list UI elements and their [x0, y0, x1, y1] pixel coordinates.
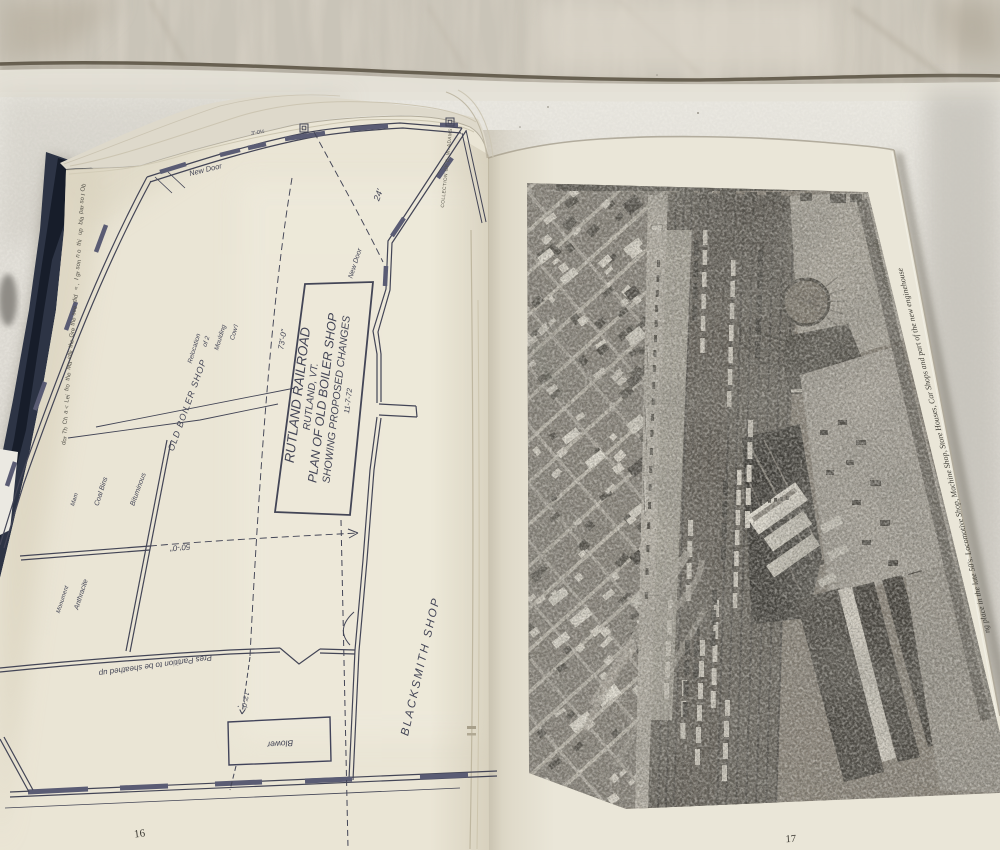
svg-text:16: 16: [133, 827, 146, 840]
svg-text:Blower: Blower: [266, 738, 294, 750]
svg-text:17: 17: [785, 834, 796, 846]
